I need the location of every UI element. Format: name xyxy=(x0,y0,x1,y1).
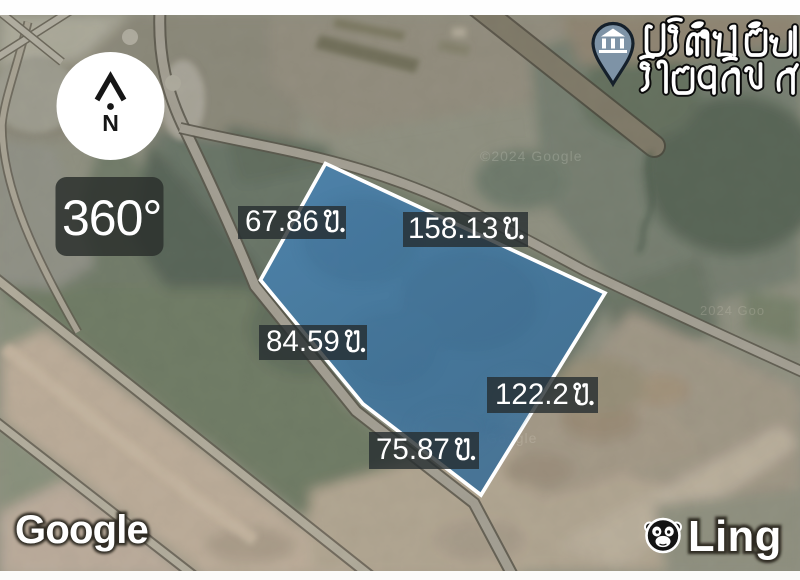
svg-text:84.59: 84.59 xyxy=(266,325,340,358)
svg-text:75.87: 75.87 xyxy=(376,433,450,466)
svg-text:122.2: 122.2 xyxy=(495,378,569,411)
svg-text:N: N xyxy=(102,110,119,136)
svg-text:Ling: Ling xyxy=(688,513,782,561)
svg-text:67.86: 67.86 xyxy=(245,205,319,238)
svg-text:2024 Goo: 2024 Goo xyxy=(700,303,765,318)
svg-text:360°: 360° xyxy=(62,190,161,246)
svg-text:Google: Google xyxy=(15,508,148,552)
svg-text:©2024 Google: ©2024 Google xyxy=(480,148,583,164)
svg-text:158.13: 158.13 xyxy=(408,212,498,245)
